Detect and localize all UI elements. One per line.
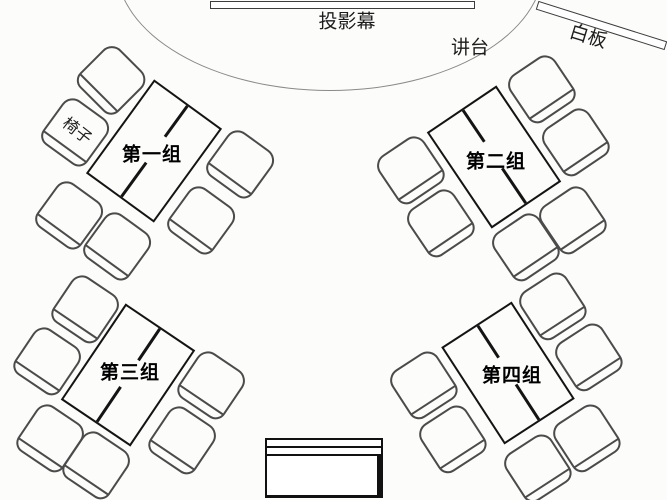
group-3-label: 第三组 [100,364,160,383]
group-4-label: 第四组 [482,367,542,386]
desk-right-edge [377,454,382,497]
table-seam [120,161,147,197]
desk-top-line [266,446,382,448]
table-seam [501,168,527,204]
rear-desk [265,438,383,498]
lectern-label: 讲台 [451,39,489,58]
projector-screen [210,1,475,9]
classroom-seating-diagram: 投影幕 讲台 白板 第一组 第二组 第 [0,0,667,500]
group-1-label: 第一组 [122,146,182,165]
table-seam [137,328,161,361]
table-seam [95,386,121,422]
table-seam [476,325,499,359]
desk-top-line [266,454,382,456]
projector-screen-label: 投影幕 [318,13,375,32]
table-seam [514,384,539,421]
group-2-label: 第二组 [466,153,526,172]
table-seam [163,105,188,138]
table-seam [461,110,485,143]
